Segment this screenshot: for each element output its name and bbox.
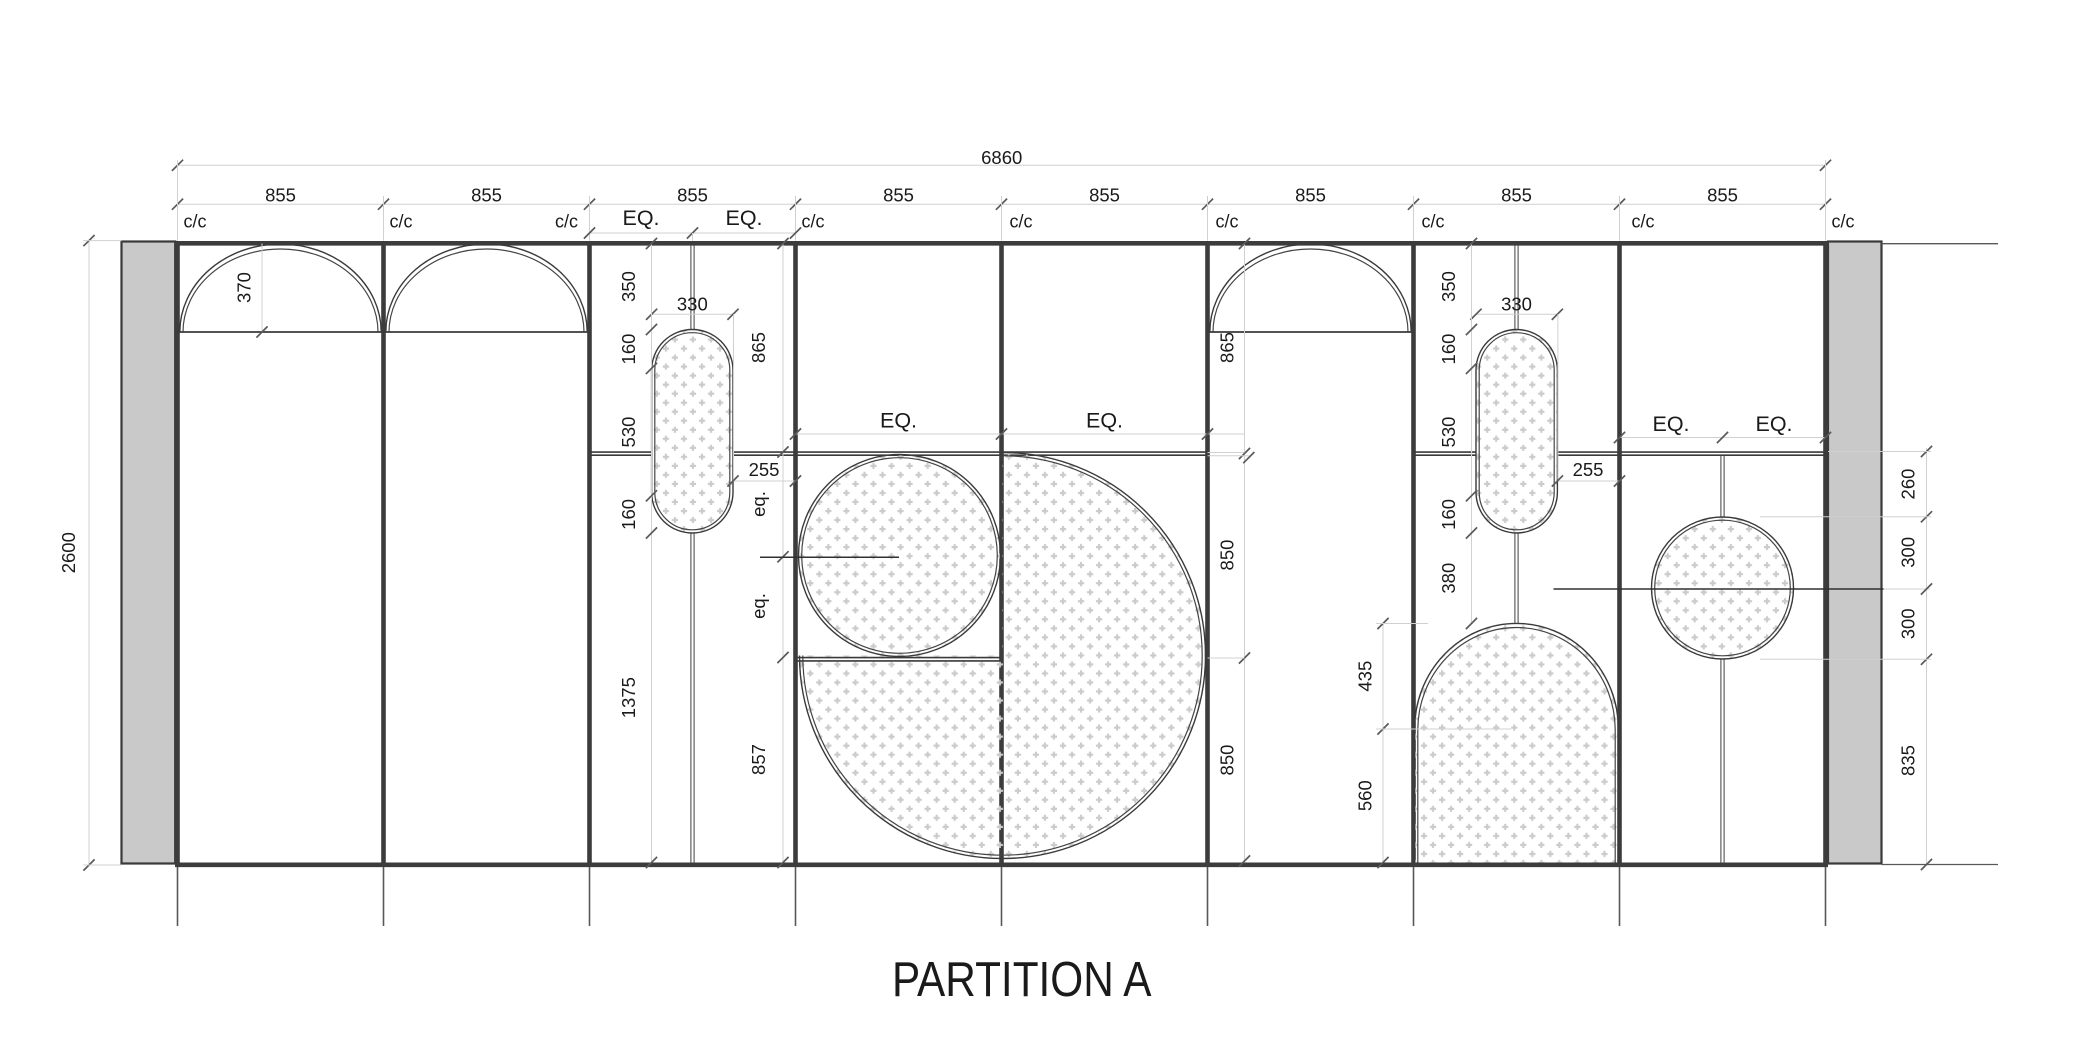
svg-text:260: 260 (1898, 469, 1919, 500)
svg-text:855: 855 (1707, 184, 1738, 205)
svg-text:350: 350 (618, 271, 639, 302)
svg-text:c/c: c/c (1832, 212, 1855, 232)
svg-text:PARTITION A: PARTITION A (892, 951, 1152, 1007)
svg-text:255: 255 (1573, 459, 1604, 480)
svg-text:1375: 1375 (618, 677, 639, 718)
svg-text:857: 857 (748, 744, 769, 775)
svg-text:370: 370 (234, 272, 255, 303)
svg-text:EQ.: EQ. (1652, 412, 1689, 436)
svg-text:865: 865 (1217, 332, 1238, 363)
svg-text:c/c: c/c (1216, 212, 1239, 232)
svg-text:c/c: c/c (390, 212, 413, 232)
svg-text:350: 350 (1438, 271, 1459, 302)
svg-text:850: 850 (1217, 540, 1238, 571)
svg-text:855: 855 (471, 184, 502, 205)
svg-text:eq.: eq. (748, 491, 769, 517)
svg-text:855: 855 (677, 184, 708, 205)
svg-text:255: 255 (749, 459, 780, 480)
svg-text:160: 160 (1438, 499, 1459, 530)
svg-text:300: 300 (1898, 537, 1919, 568)
svg-text:EQ.: EQ. (1086, 408, 1123, 432)
svg-text:855: 855 (1089, 184, 1120, 205)
svg-text:300: 300 (1898, 608, 1919, 639)
svg-text:160: 160 (618, 334, 639, 365)
svg-text:EQ.: EQ. (622, 206, 659, 230)
svg-text:435: 435 (1354, 661, 1375, 692)
svg-text:c/c: c/c (555, 212, 578, 232)
svg-text:380: 380 (1438, 563, 1459, 594)
svg-text:865: 865 (748, 332, 769, 363)
svg-text:835: 835 (1898, 745, 1919, 776)
svg-text:330: 330 (677, 293, 708, 314)
svg-text:EQ.: EQ. (1755, 412, 1792, 436)
svg-text:c/c: c/c (1422, 212, 1445, 232)
svg-text:160: 160 (618, 499, 639, 530)
svg-text:855: 855 (265, 184, 296, 205)
svg-text:6860: 6860 (981, 147, 1022, 168)
svg-text:c/c: c/c (1010, 212, 1033, 232)
svg-text:c/c: c/c (802, 212, 825, 232)
svg-text:855: 855 (1295, 184, 1326, 205)
svg-text:530: 530 (618, 417, 639, 448)
svg-text:2600: 2600 (58, 532, 79, 573)
svg-text:c/c: c/c (184, 212, 207, 232)
svg-text:EQ.: EQ. (725, 206, 762, 230)
svg-text:855: 855 (1501, 184, 1532, 205)
svg-text:c/c: c/c (1632, 212, 1655, 232)
svg-text:eq.: eq. (748, 593, 769, 619)
svg-text:560: 560 (1354, 780, 1375, 811)
svg-text:850: 850 (1217, 745, 1238, 776)
svg-text:330: 330 (1501, 293, 1532, 314)
svg-text:530: 530 (1438, 417, 1459, 448)
svg-text:160: 160 (1438, 334, 1459, 365)
svg-text:855: 855 (883, 184, 914, 205)
svg-text:EQ.: EQ. (880, 408, 917, 432)
